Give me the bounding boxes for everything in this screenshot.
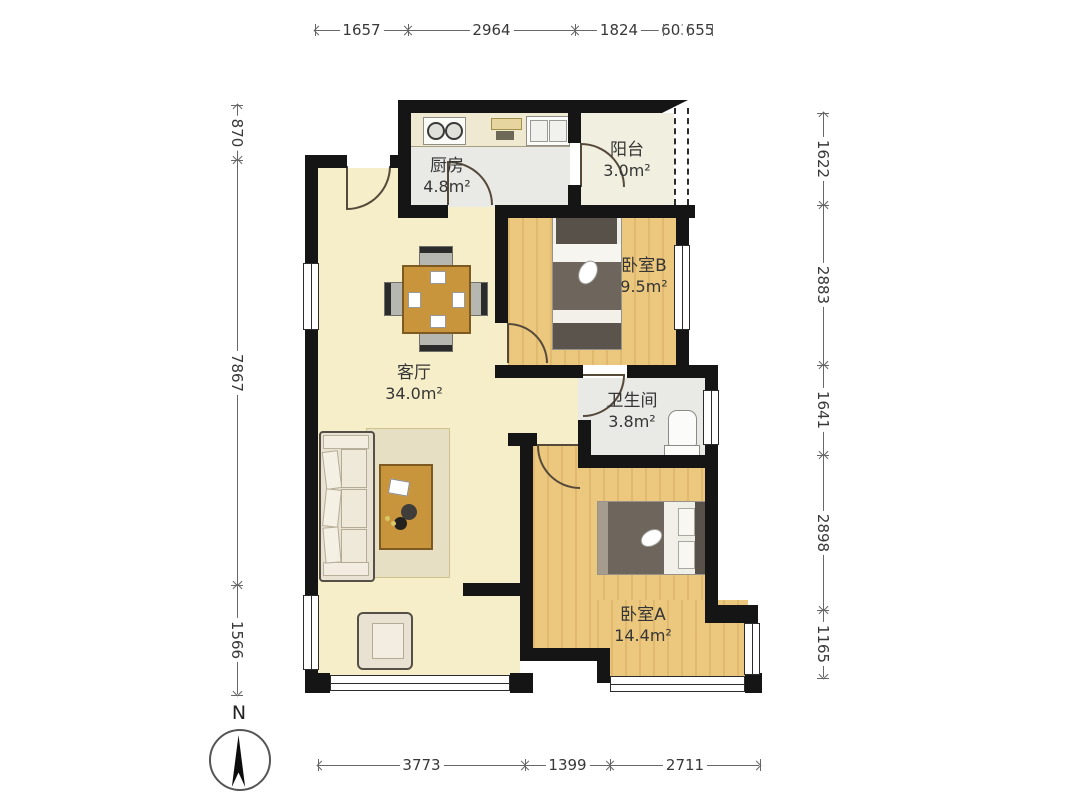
bed-pillow: [678, 541, 695, 569]
place-setting: [430, 271, 446, 284]
dim-label: 1165: [814, 622, 832, 666]
room-name: 卫生间: [592, 391, 672, 412]
dimension-segment: 1399: [525, 757, 610, 773]
chair-back: [481, 283, 487, 315]
dining-table: [402, 265, 471, 334]
burner: [427, 122, 445, 140]
window: [744, 623, 760, 675]
place-setting: [408, 292, 421, 308]
dim-tick: [318, 759, 319, 771]
dimension-segment: 2883: [815, 205, 831, 365]
wall-segment: [398, 100, 662, 113]
wall-segment: [508, 433, 537, 446]
room-area: 34.0m²: [373, 384, 455, 404]
dim-label: 1622: [814, 137, 832, 181]
dim-tick: [817, 610, 829, 611]
wall-segment: [305, 670, 318, 693]
window: [674, 245, 690, 330]
dim-tick: [315, 24, 316, 36]
bed-headboard: [556, 216, 617, 244]
balcony-door-leaf: [580, 143, 582, 187]
dimension-segment: 870: [229, 105, 245, 160]
bed-footboard: [553, 323, 621, 349]
wall-segment: [510, 673, 533, 693]
bed-pillow: [678, 508, 695, 536]
kitchen-appliance: [491, 118, 522, 130]
sofa-armrest: [323, 562, 369, 576]
wall-segment: [495, 365, 583, 378]
dim-label: 2964: [469, 21, 513, 39]
coffee-table: [379, 464, 433, 550]
dim-tick: [817, 113, 829, 114]
chair-back: [420, 247, 452, 253]
dimension-segment: 1824: [575, 22, 663, 38]
entry-door-leaf: [346, 166, 348, 210]
dimension-segment: 1622: [815, 113, 831, 205]
chair-back: [420, 345, 452, 351]
dim-label: 1657: [339, 21, 383, 39]
dim-label: 1566: [228, 618, 246, 662]
wall-segment: [495, 205, 508, 323]
bed-bedroom-a: [597, 501, 709, 575]
dim-tick: [817, 455, 829, 456]
bed-blanket-band: [553, 310, 621, 323]
dim-tick: [525, 759, 526, 771]
kitchen-counter: [411, 113, 570, 147]
dimension-segment: 1657: [315, 22, 408, 38]
sofa-armrest: [323, 435, 369, 449]
kitchen-sink: [526, 116, 570, 146]
dimension-segment: 2898: [815, 455, 831, 610]
wall-segment: [676, 330, 689, 378]
room-label-living: 客厅 34.0m²: [373, 363, 455, 404]
dim-label: 7867: [228, 350, 246, 394]
dim-label: 2898: [814, 510, 832, 554]
dim-label: 1641: [814, 388, 832, 432]
dim-tick: [575, 24, 576, 36]
room-area: 14.4m²: [602, 626, 684, 646]
dimension-segment: 3773: [318, 757, 525, 773]
room-label-bathroom: 卫生间 3.8m²: [592, 391, 672, 432]
dim-tick: [817, 365, 829, 366]
dim-tick: [231, 585, 243, 586]
sofa-seat-cushion: [341, 449, 367, 488]
sofa-seat-cushion: [341, 529, 367, 563]
wall-segment: [745, 673, 762, 693]
compass: N: [200, 700, 280, 795]
chair-back: [385, 283, 391, 315]
sink-basin: [530, 120, 548, 142]
bed-blanket-band: [664, 502, 676, 574]
sofa: [319, 431, 375, 582]
dim-label: 2883: [814, 263, 832, 307]
dim-label: 1824: [597, 21, 641, 39]
room-area: 9.5m²: [604, 277, 684, 297]
room-label-bedroom-a: 卧室A 14.4m²: [602, 605, 684, 646]
window: [303, 263, 319, 330]
wall-segment: [580, 455, 718, 468]
window: [303, 595, 319, 670]
room-name: 阳台: [588, 140, 666, 161]
wall-segment: [568, 185, 581, 207]
dim-tick: [688, 24, 689, 36]
decor-dot: [391, 521, 396, 526]
room-area: 3.0m²: [588, 161, 666, 181]
stove-cooktop: [423, 117, 466, 145]
dim-tick: [610, 759, 611, 771]
room-name: 厨房: [407, 156, 487, 177]
dimension-segment: 7867: [229, 160, 245, 585]
dim-label: 1399: [545, 756, 589, 774]
room-label-bedroom-b: 卧室B 9.5m²: [604, 256, 684, 297]
wall-segment: [495, 205, 695, 218]
floorplan-page: 厨房 4.8m² 阳台 3.0m² 卧室B 9.5m² 客厅 34.0m² 卫生…: [0, 0, 1067, 800]
dim-tick: [663, 24, 664, 36]
wall-segment: [305, 155, 318, 263]
sofa-back-cushion: [322, 526, 341, 563]
wall-segment: [520, 446, 533, 661]
room-name: 卧室A: [602, 605, 684, 626]
dimension-segment: 2964: [408, 22, 575, 38]
window: [610, 676, 745, 692]
place-setting: [430, 315, 446, 328]
dim-label: 3773: [399, 756, 443, 774]
dimension-segment: 1165: [815, 610, 831, 678]
room-area: 4.8m²: [407, 177, 487, 197]
wall-segment: [463, 583, 520, 596]
place-setting: [452, 292, 465, 308]
bedroom-a-door-leaf: [537, 444, 580, 446]
toilet-bowl: [668, 410, 697, 449]
dim-tick: [231, 695, 243, 696]
wall-segment: [568, 113, 581, 143]
sink-basin: [549, 120, 567, 142]
window: [330, 675, 510, 691]
window: [703, 390, 719, 445]
living-room-floor: [318, 168, 520, 680]
room-name: 卧室B: [604, 256, 684, 277]
decor-dot: [385, 516, 390, 521]
wall-segment: [705, 365, 718, 390]
armchair-seat: [372, 623, 404, 659]
balcony-dashed-edge: [687, 108, 689, 205]
dimension-segment: 1641: [815, 365, 831, 455]
dim-tick: [408, 24, 409, 36]
bathroom-door-leaf: [583, 374, 625, 376]
dim-tick: [817, 678, 829, 679]
wall-segment: [597, 648, 610, 683]
bed-footboard: [598, 502, 608, 574]
dim-tick: [712, 24, 713, 36]
dim-tick: [231, 105, 243, 106]
wall-segment: [676, 205, 689, 245]
tv-remote: [388, 478, 410, 496]
dim-label: 870: [228, 115, 246, 150]
wall-segment: [305, 330, 318, 595]
bedroom-b-door-leaf: [507, 323, 509, 363]
compass-north-label: N: [226, 702, 252, 724]
wall-segment: [578, 420, 591, 468]
wall-segment: [398, 100, 411, 218]
wall-segment: [705, 445, 718, 605]
room-name: 客厅: [373, 363, 455, 384]
kitchen-appliance-grill: [496, 131, 514, 140]
sofa-seat-cushion: [341, 489, 367, 528]
sofa-back-cushion: [322, 450, 343, 490]
dim-tick: [817, 205, 829, 206]
burner: [445, 122, 463, 140]
balcony-dashed-edge: [674, 108, 676, 205]
dimension-segment: 655: [688, 22, 712, 38]
wall-segment: [705, 605, 758, 623]
room-area: 3.8m²: [592, 412, 672, 432]
room-label-kitchen: 厨房 4.8m²: [407, 156, 487, 197]
armchair: [357, 612, 413, 670]
dim-label: 2711: [663, 756, 707, 774]
dimension-segment: 2711: [610, 757, 760, 773]
dim-tick: [760, 759, 761, 771]
room-label-balcony: 阳台 3.0m²: [588, 140, 666, 181]
sofa-back-cushion: [322, 488, 342, 527]
dimension-segment: 1566: [229, 585, 245, 695]
dim-tick: [231, 160, 243, 161]
